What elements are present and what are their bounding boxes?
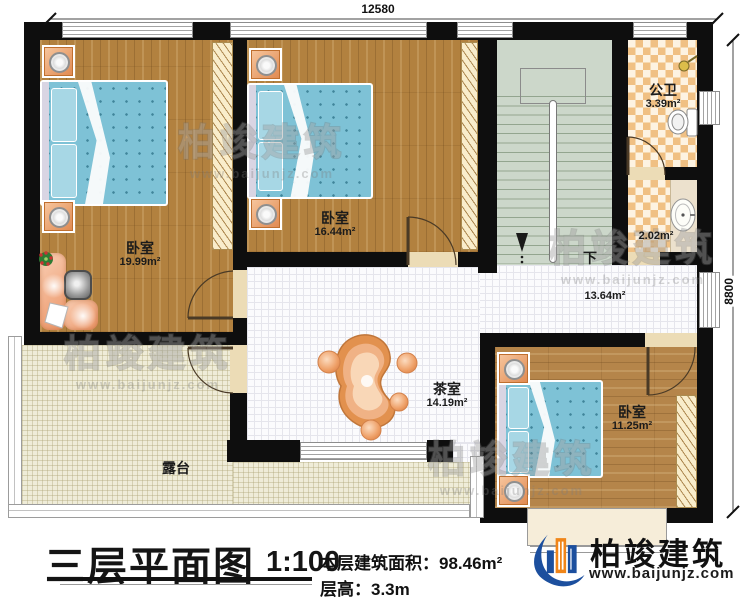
room-name: 露台	[148, 460, 204, 476]
bed2-sheet-fold	[284, 85, 314, 197]
room-area: 3.39m²	[633, 98, 693, 111]
table-lamp-icon	[49, 207, 70, 228]
wall-stair-left	[478, 22, 497, 273]
room-label-bedroom2: 卧室 16.44m²	[295, 210, 375, 239]
title-underline-thin	[60, 584, 312, 585]
room-label-bathroom: 公卫 3.39m²	[633, 82, 693, 111]
nightstand	[42, 200, 75, 233]
closet-bedroom1	[212, 42, 233, 250]
window-bathroom-right	[699, 91, 720, 125]
bathroom-door-threshold	[628, 167, 665, 180]
wall-bedroom3-top	[480, 333, 645, 347]
terrace-railing-bottom	[8, 504, 470, 518]
floor-plan-page: 柏竣建筑 www.baijunjz.com 柏竣建筑 www.baijunjz.…	[0, 0, 750, 599]
tearoom-floor	[247, 267, 480, 443]
floor-height-label: 层高：	[320, 580, 371, 599]
desk-lamp-glow	[42, 274, 66, 298]
room-name: 茶室	[407, 381, 487, 397]
wall-bedroom2-bottom-left	[233, 252, 408, 267]
room-label-tearoom: 茶室 14.19m²	[407, 381, 487, 410]
nightstand	[249, 48, 282, 81]
wall-left	[24, 22, 40, 345]
wall-bedroom1-bottom	[24, 332, 247, 345]
washroom-entry-threshold	[628, 252, 660, 265]
window-tearoom-bottom	[300, 442, 427, 460]
title-underline-thick	[60, 577, 312, 581]
room-name: 卧室	[590, 404, 674, 420]
wall-washroom-bottom	[660, 252, 713, 265]
room-label-bedroom1: 卧室 19.99m²	[100, 240, 180, 269]
room-area: 2.02m²	[626, 230, 686, 243]
bed1-headboard	[42, 82, 49, 204]
bed2-pillow	[258, 91, 283, 140]
room-area: 19.99m²	[100, 256, 180, 269]
window-bathroom-top	[633, 22, 687, 38]
desk-chair	[64, 270, 92, 300]
floor-height-value: 3.3m	[371, 580, 410, 599]
brand-website: www.baijunjz.com	[589, 565, 734, 582]
room-name: 卧室	[100, 240, 180, 256]
dimension-top-value: 12580	[343, 2, 413, 16]
terrace-door-threshold	[230, 345, 247, 393]
room-area: 13.64m²	[574, 290, 636, 303]
room-label-hallway: 13.64m²	[574, 290, 636, 303]
room-area: 14.19m²	[407, 397, 487, 410]
table-lamp-icon	[49, 52, 70, 73]
wall-tearoom-left	[230, 393, 247, 440]
bedroom2-door-threshold	[408, 252, 458, 267]
terrace-floor-bottom	[233, 462, 470, 504]
room-label-terrace: 露台	[148, 460, 204, 476]
bed2-pillow	[258, 142, 283, 191]
terrace-railing-left	[8, 336, 22, 518]
nightstand	[42, 45, 75, 78]
nightstand	[497, 474, 530, 507]
bed-bedroom1	[40, 80, 168, 206]
table-lamp-icon	[256, 55, 277, 76]
bed3-pillow	[508, 387, 529, 429]
closet-bedroom2	[461, 42, 478, 250]
bedroom3-door-threshold	[645, 333, 697, 347]
wall-bedroom2-bottom-right	[458, 252, 478, 267]
wall-tearoom-bottom-right	[427, 440, 453, 462]
stair-down-text: 下	[581, 250, 599, 266]
window-stairwell-top	[457, 22, 513, 38]
bed1-pillow	[51, 144, 77, 198]
table-lamp-icon	[256, 204, 277, 225]
wall-tearoom-bottom-left	[227, 440, 300, 462]
stair-landing-outline	[520, 68, 586, 104]
bedroom1-door-threshold	[233, 270, 247, 318]
nightstand	[249, 197, 282, 230]
dimension-right-value: 8800	[722, 276, 736, 307]
bed3-pillow	[508, 431, 529, 473]
bed-bedroom2	[247, 83, 373, 199]
terrace-floor-left	[22, 345, 233, 504]
table-lamp-icon	[504, 359, 525, 380]
wall-bedroom3-bottom-left	[480, 508, 527, 523]
room-area: 11.25m²	[590, 420, 674, 433]
nightstand	[497, 352, 530, 385]
floor-height-row: 层高：3.3m	[320, 575, 410, 599]
bed1-pillow	[51, 88, 77, 142]
floor-area-row: 本层建筑面积：98.46m²	[320, 549, 502, 574]
bed3-headboard	[499, 382, 506, 476]
room-area: 16.44m²	[295, 226, 375, 239]
bed1-sheet-fold	[78, 82, 110, 204]
closet-bedroom3	[676, 395, 697, 508]
room-label-bedroom3: 卧室 11.25m²	[590, 404, 674, 433]
table-lamp-icon	[504, 481, 525, 502]
floor-area-label: 本层建筑面积：	[320, 554, 439, 573]
desk-lamp-glow	[70, 303, 96, 329]
room-label-washroom: 2.02m²	[626, 230, 686, 243]
room-name: 卧室	[295, 210, 375, 226]
bed2-headboard	[249, 85, 256, 197]
stair-direction-label: 下	[581, 250, 599, 266]
bed-bedroom3	[497, 380, 603, 478]
brand-logo-icon	[532, 529, 588, 591]
floor-area-value: 98.46m²	[439, 554, 502, 573]
room-name: 公卫	[633, 82, 693, 98]
wall-stair-right	[612, 22, 628, 265]
stair-railing	[549, 100, 557, 263]
window-hallway-right	[699, 272, 720, 328]
window-bedroom2-top	[230, 22, 427, 38]
wall-bedroom1-right	[233, 22, 247, 270]
wall-bathroom-divider	[665, 167, 697, 180]
wall-bedroom3-bottom-right	[667, 508, 713, 523]
bed3-sheet-fold	[529, 382, 555, 476]
terrace-railing-right	[470, 456, 484, 518]
window-bedroom1-top	[62, 22, 193, 38]
